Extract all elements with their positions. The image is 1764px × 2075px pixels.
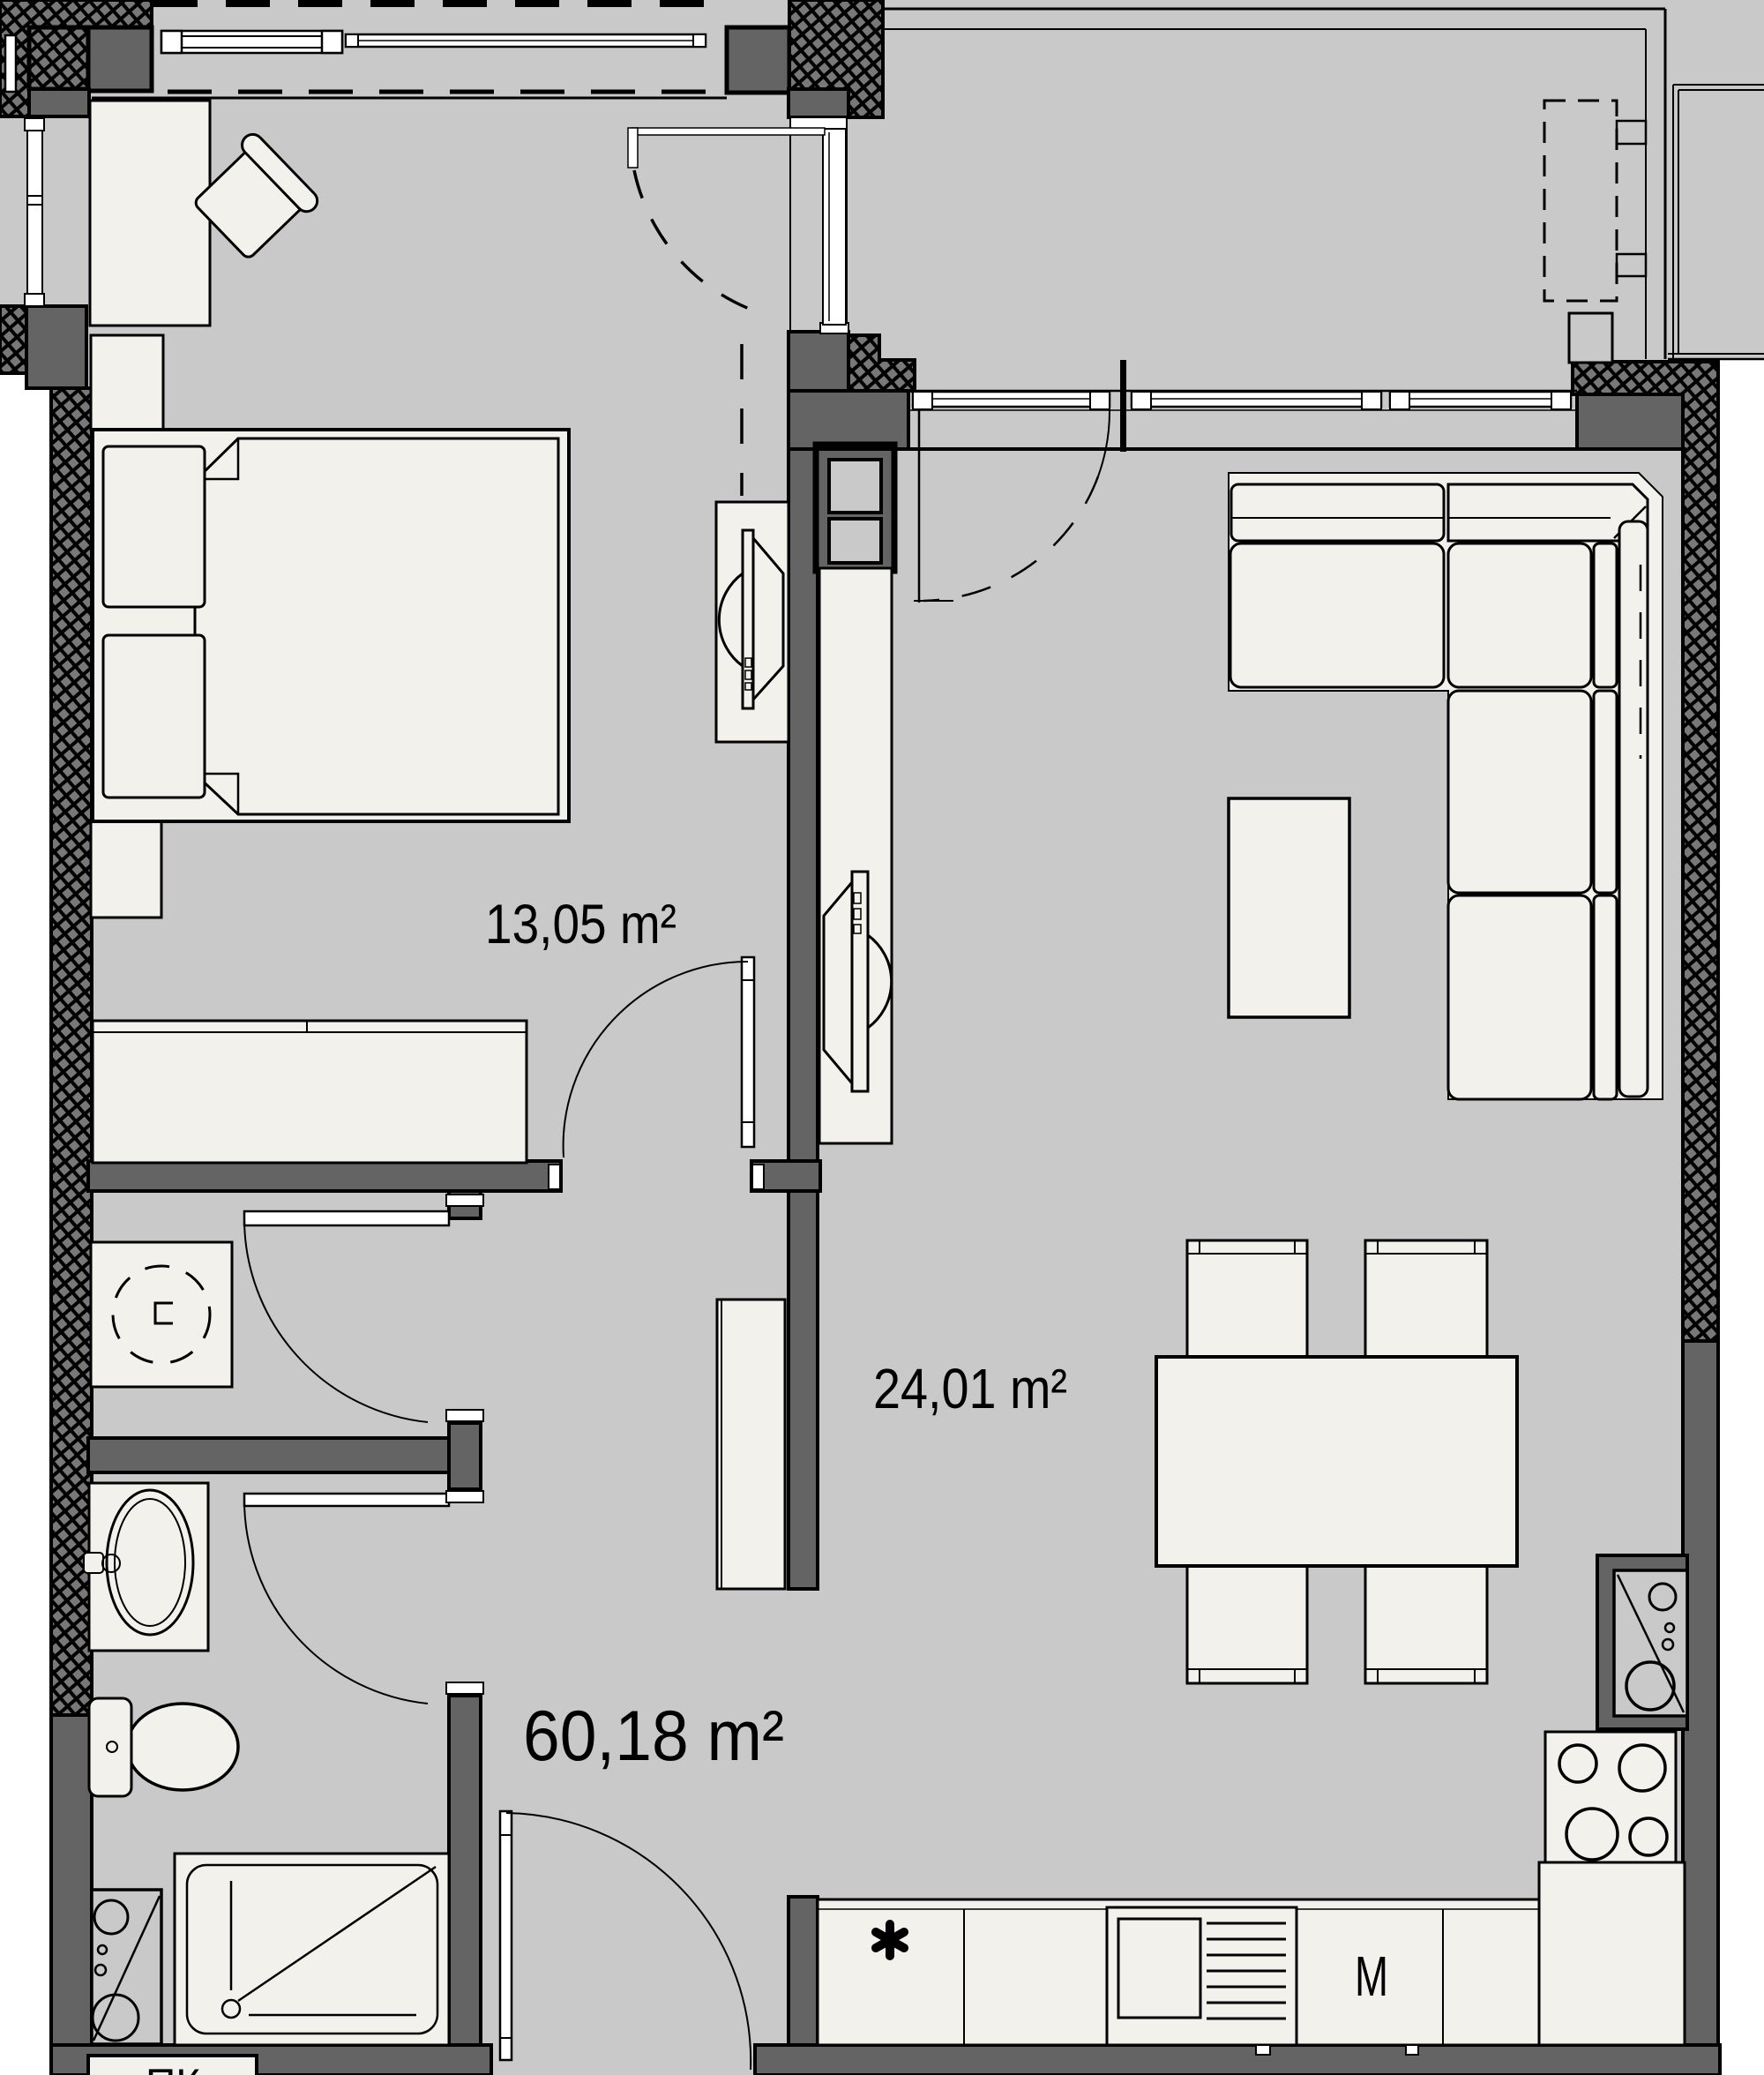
svg-text:ПК: ПК <box>146 2061 200 2075</box>
svg-text:24,01 m²: 24,01 m² <box>873 1357 1067 1420</box>
svg-text:13,05 m²: 13,05 m² <box>485 894 676 955</box>
svg-text:60,18 m²: 60,18 m² <box>523 1697 784 1776</box>
svg-text:M: M <box>1355 1944 1388 2008</box>
